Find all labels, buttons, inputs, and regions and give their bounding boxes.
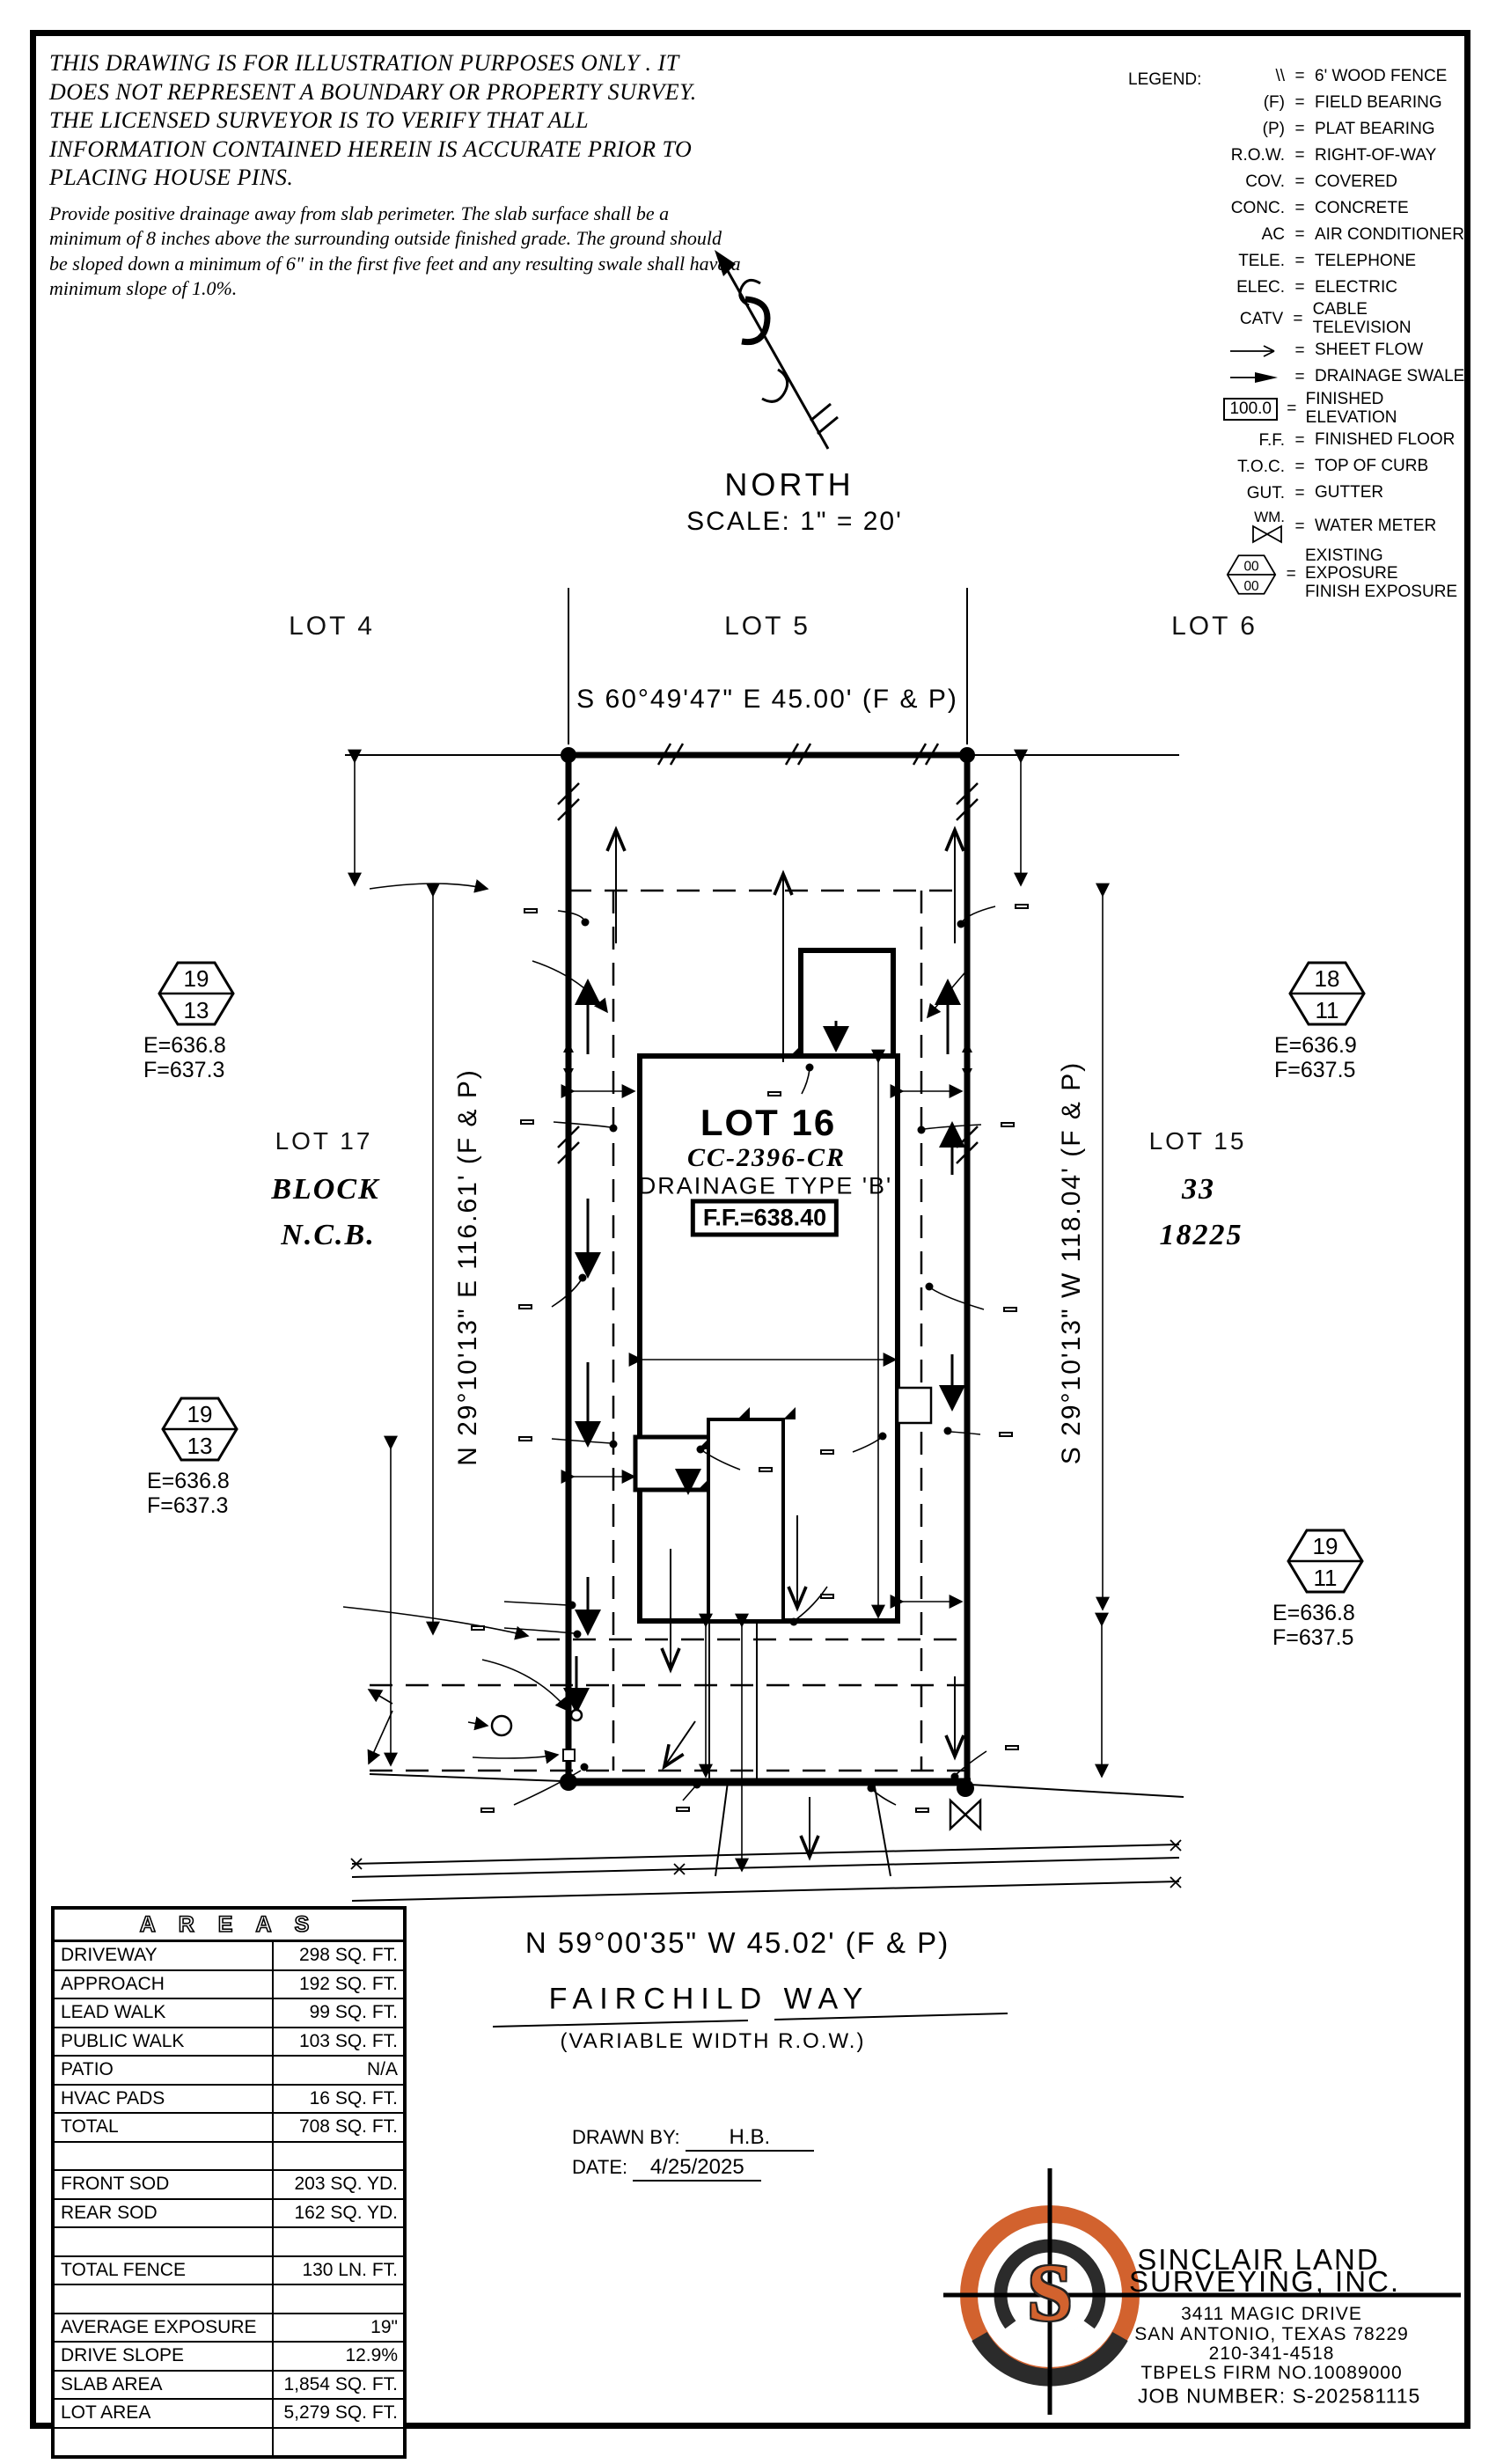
areas-row-value: 12.9% — [274, 2343, 403, 2370]
areas-table-title: A R E A S — [55, 1910, 403, 1942]
exposure-hex-icon: 00 00 — [1226, 553, 1277, 597]
areas-row-value — [274, 2429, 403, 2456]
areas-table-row: LEAD WALK 99 SQ. FT. — [55, 1999, 403, 2028]
exposure-marker: 19 13 E=636.8 F=637.3 — [147, 1379, 253, 1534]
exposure-values: E=636.8 F=637.3 — [147, 1470, 253, 1518]
areas-row-label: HVAC PADS — [55, 2086, 274, 2113]
legend-equals: = — [1285, 517, 1315, 537]
finished-elevation — [518, 1436, 532, 1441]
areas-table-row: SLAB AREA 1,854 SQ. FT. — [55, 2372, 403, 2401]
finished-elevation — [1001, 1122, 1015, 1127]
areas-table-row: DRIVE SLOPE 12.9% — [55, 2343, 403, 2372]
areas-row-value: 203 SQ. YD. — [274, 2171, 403, 2198]
finished-elevation — [1005, 1745, 1019, 1750]
legend-row: TELE. = TELEPHONE — [1181, 248, 1468, 275]
firm-monogram: S — [1027, 2246, 1072, 2339]
lot15-block33: 33 — [1182, 1173, 1215, 1206]
areas-row-label: DRIVEWAY — [55, 1942, 274, 1969]
finished-elevation — [759, 1467, 773, 1472]
areas-row-label: PUBLIC WALK — [55, 2028, 274, 2056]
areas-table-row: PATIO N/A — [55, 2057, 403, 2086]
svg-text:19: 19 — [187, 1401, 213, 1427]
finished-elevation — [999, 1432, 1013, 1437]
exposure-hex-icon: 18 11 — [1287, 959, 1367, 1028]
legend-row: CONC. = CONCRETE — [1181, 195, 1468, 222]
legend-label: WATER METER — [1315, 517, 1436, 536]
legend-row: 00 00 = EXISTING EXPOSURE FINISH EXPOSUR… — [1181, 547, 1468, 603]
areas-row-label — [55, 2143, 274, 2170]
walk-drive-street — [352, 1621, 1179, 2027]
legend-equals: = — [1285, 368, 1315, 387]
areas-table-row: LOT AREA 5,279 SQ. FT. — [55, 2400, 403, 2429]
legend-equals: = — [1285, 93, 1315, 113]
exposure-marker: 19 11 E=636.8 F=637.5 — [1272, 1511, 1378, 1666]
legend-label: FIELD BEARING — [1315, 94, 1442, 113]
adjacent-lot-5: LOT 5 — [724, 612, 810, 642]
legend-symbol: 00 00 — [1181, 553, 1277, 597]
legend-label: EXISTING EXPOSURE FINISH EXPOSURE — [1305, 547, 1468, 603]
legend-row: WM. = WATER METER — [1181, 507, 1468, 547]
finished-elevation — [471, 1625, 485, 1631]
areas-row-label: FRONT SOD — [55, 2171, 274, 2198]
disclaimer: THIS DRAWING IS FOR ILLUSTRATION PURPOSE… — [49, 49, 744, 311]
areas-row-label: LOT AREA — [55, 2400, 274, 2427]
areas-row-label: PATIO — [55, 2057, 274, 2084]
firm-job-number: JOB NUMBER: S-202581115 — [1138, 2385, 1420, 2409]
legend-equals: = — [1277, 565, 1305, 584]
areas-row-label: REAR SOD — [55, 2200, 274, 2227]
legend-label: GUTTER — [1315, 484, 1383, 502]
legend-label: CABLE TELEVISION — [1313, 301, 1468, 338]
areas-row-label: SLAB AREA — [55, 2372, 274, 2399]
drawn-by-row: DRAWN BY: H.B. — [475, 2125, 873, 2152]
adjacent-lot-6: LOT 6 — [1171, 612, 1258, 642]
finished-elevation — [820, 1594, 834, 1599]
drawn-by-label: DRAWN BY: — [572, 2126, 680, 2148]
bearing-bottom: N 59°00'35" W 45.02' (F & P) — [525, 1926, 950, 1960]
finished-elevation — [676, 1807, 690, 1812]
areas-row-value: 5,279 SQ. FT. — [274, 2400, 403, 2427]
legend-label: 6' WOOD FENCE — [1315, 68, 1447, 86]
legend-row: T.O.C. = TOP OF CURB — [1181, 454, 1468, 480]
legend-equals: = — [1283, 310, 1312, 329]
legend-symbol: WM. — [1181, 510, 1285, 544]
areas-row-label: TOTAL — [55, 2114, 274, 2141]
legend-equals: = — [1285, 172, 1315, 192]
legend-equals: = — [1285, 278, 1315, 297]
sheet-flow-icon — [1228, 344, 1285, 357]
disclaimer-paragraph-1: THIS DRAWING IS FOR ILLUSTRATION PURPOSE… — [49, 49, 744, 193]
legend-label: SHEET FLOW — [1315, 341, 1423, 360]
finished-elevation — [915, 1808, 929, 1813]
exposure-hex-icon: 19 13 — [160, 1395, 239, 1463]
finished-elevation — [480, 1808, 495, 1813]
areas-row-value — [274, 2143, 403, 2170]
areas-table: A R E A S DRIVEWAY 298 SQ. FT. APPROACH … — [51, 1906, 407, 2459]
legend-equals: = — [1285, 458, 1315, 477]
lot17-block: BLOCK — [271, 1173, 379, 1206]
legend-equals: = — [1285, 67, 1315, 86]
legend-equals: = — [1285, 431, 1315, 451]
legend-row: \\ = 6' WOOD FENCE — [1181, 63, 1468, 90]
svg-text:18: 18 — [1315, 965, 1340, 992]
street-name: FAIRCHILD WAY — [549, 1983, 870, 2017]
subject-lot-drainage: DRAINAGE TYPE 'B' — [639, 1173, 892, 1200]
legend-symbol: \\ — [1181, 67, 1285, 86]
legend-symbol: F.F. — [1181, 431, 1285, 451]
adjacent-lot-4: LOT 4 — [289, 612, 375, 642]
areas-table-row: AVERAGE EXPOSURE 19" — [55, 2314, 403, 2343]
areas-row-value: 708 SQ. FT. — [274, 2114, 403, 2141]
finished-elevation — [820, 1449, 834, 1455]
lot17-label: LOT 17 — [275, 1127, 373, 1155]
areas-row-value: 162 SQ. YD. — [274, 2200, 403, 2227]
legend-label: FINISHED ELEVATION — [1306, 391, 1468, 428]
finished-elevation — [520, 1119, 534, 1125]
firm-address-1: 3411 MAGIC DRIVE — [1181, 2304, 1362, 2325]
legend-label: TOP OF CURB — [1315, 458, 1428, 476]
exposure-marker: 19 13 E=636.8 F=637.3 — [143, 943, 249, 1098]
areas-row-value — [274, 2285, 403, 2313]
finished-elevation — [1015, 904, 1029, 909]
areas-table-row: DRIVEWAY 298 SQ. FT. — [55, 1942, 403, 1971]
legend-label: AIR CONDITIONER — [1315, 226, 1464, 245]
areas-table-row — [55, 2429, 403, 2456]
areas-row-label — [55, 2285, 274, 2313]
water-meter-icon — [950, 1800, 980, 1829]
legend-row: F.F. = FINISHED FLOOR — [1181, 428, 1468, 454]
areas-row-label — [55, 2429, 274, 2456]
legend-equals: = — [1285, 120, 1315, 139]
areas-table-row: TOTAL FENCE 130 LN. FT. — [55, 2257, 403, 2286]
areas-row-label: DRIVE SLOPE — [55, 2343, 274, 2370]
firm-tbpels: TBPELS FIRM NO.10089000 — [1140, 2363, 1402, 2384]
exposure-values: E=636.8 F=637.5 — [1272, 1602, 1378, 1650]
areas-row-value: N/A — [274, 2057, 403, 2084]
legend-symbol: (F) — [1181, 93, 1285, 113]
scale-label: SCALE: 1" = 20' — [686, 507, 903, 537]
legend-symbol: 100.0 — [1181, 398, 1278, 421]
legend-equals: = — [1285, 225, 1315, 245]
finished-elevation — [518, 1304, 532, 1309]
areas-row-value: 130 LN. FT. — [274, 2257, 403, 2284]
legend-symbol: CONC. — [1181, 199, 1285, 218]
title-block: DRAWN BY: H.B. DATE: 4/25/2025 — [475, 2116, 873, 2182]
finished-elevation — [767, 1091, 781, 1096]
exposure-marker: 18 11 E=636.9 F=637.5 — [1274, 943, 1380, 1098]
svg-text:19: 19 — [184, 965, 209, 992]
legend-symbol: TELE. — [1181, 252, 1285, 271]
areas-row-value: 99 SQ. FT. — [274, 1999, 403, 2027]
svg-text:13: 13 — [184, 997, 209, 1023]
exposure-hex-icon: 19 13 — [157, 959, 236, 1028]
bearing-left: N 29°10'13" E 116.61' (F & P) — [453, 1068, 483, 1466]
areas-row-value — [274, 2228, 403, 2255]
bearing-top: S 60°49'47" E 45.00' (F & P) — [576, 685, 958, 715]
areas-table-rows: DRIVEWAY 298 SQ. FT. APPROACH 192 SQ. FT… — [55, 1942, 403, 2455]
bearing-right: S 29°10'13" W 118.04' (F & P) — [1057, 1061, 1087, 1464]
legend-symbol — [1181, 370, 1285, 384]
legend-symbol: CATV — [1181, 310, 1283, 329]
areas-table-row — [55, 2285, 403, 2314]
svg-text:19: 19 — [1313, 1533, 1338, 1559]
lot17-ncb: N.C.B. — [281, 1219, 375, 1252]
firm-address-2: SAN ANTONIO, TEXAS 78229 — [1134, 2324, 1409, 2345]
areas-table-row: PUBLIC WALK 103 SQ. FT. — [55, 2028, 403, 2057]
north-label: NORTH — [724, 466, 854, 503]
date-label: DATE: — [572, 2156, 627, 2178]
firm-name-line2: SURVEYING, INC. — [1129, 2265, 1400, 2299]
legend-label: CONCRETE — [1315, 200, 1409, 218]
legend-label: COVERED — [1315, 173, 1397, 192]
legend-row: = DRAINAGE SWALE — [1181, 364, 1468, 391]
legend-row: GUT. = GUTTER — [1181, 480, 1468, 507]
svg-text:13: 13 — [187, 1433, 213, 1459]
legend-row: (P) = PLAT BEARING — [1181, 116, 1468, 143]
areas-row-value: 192 SQ. FT. — [274, 1971, 403, 1998]
areas-table-row: REAR SOD 162 SQ. YD. — [55, 2200, 403, 2229]
legend-symbol: (P) — [1181, 120, 1285, 139]
legend-symbol: T.O.C. — [1181, 458, 1285, 477]
legend-row: AC = AIR CONDITIONER — [1181, 222, 1468, 248]
lot15-ncb: 18225 — [1160, 1219, 1243, 1252]
subject-lot-cc: CC-2396-CR — [687, 1143, 846, 1173]
legend-equals: = — [1285, 252, 1315, 271]
areas-row-value: 19" — [274, 2314, 403, 2342]
legend-row: (F) = FIELD BEARING — [1181, 90, 1468, 116]
legend-label: FINISHED FLOOR — [1315, 431, 1455, 450]
legend-row: 100.0 = FINISHED ELEVATION — [1181, 391, 1468, 428]
legend-equals: = — [1278, 400, 1306, 419]
legend-label: TELEPHONE — [1315, 253, 1416, 271]
legend-equals: = — [1285, 146, 1315, 165]
street-row: (VARIABLE WIDTH R.O.W.) — [561, 2029, 866, 2054]
exposure-values: E=636.9 F=637.5 — [1274, 1034, 1380, 1082]
areas-table-row: TOTAL 708 SQ. FT. — [55, 2114, 403, 2143]
site-plan-sheet: THIS DRAWING IS FOR ILLUSTRATION PURPOSE… — [0, 0, 1496, 2464]
legend-row: = SHEET FLOW — [1181, 338, 1468, 364]
svg-text:00: 00 — [1244, 559, 1259, 574]
legend-symbol: GUT. — [1181, 484, 1285, 503]
finished-elevation — [524, 908, 538, 913]
areas-row-value: 16 SQ. FT. — [274, 2086, 403, 2113]
areas-table-row — [55, 2143, 403, 2172]
firm-phone: 210-341-4518 — [1209, 2343, 1335, 2365]
legend-symbol — [1181, 344, 1285, 357]
areas-row-label — [55, 2228, 274, 2255]
areas-table-row: FRONT SOD 203 SQ. YD. — [55, 2171, 403, 2200]
finished-elevation — [1003, 1307, 1017, 1312]
finished-floor-label: F.F.=638.40 — [691, 1199, 839, 1237]
areas-table-row: APPROACH 192 SQ. FT. — [55, 1971, 403, 2000]
legend-symbol: ELEC. — [1181, 278, 1285, 297]
disclaimer-paragraph-2: Provide positive drainage away from slab… — [49, 202, 744, 302]
legend-row: R.O.W. = RIGHT-OF-WAY — [1181, 143, 1468, 169]
lot15-label: LOT 15 — [1149, 1127, 1247, 1155]
areas-row-label: LEAD WALK — [55, 1999, 274, 2027]
svg-text:00: 00 — [1244, 579, 1259, 594]
svg-text:11: 11 — [1316, 997, 1339, 1023]
date-row: DATE: 4/25/2025 — [475, 2155, 873, 2182]
legend-equals: = — [1285, 341, 1315, 361]
legend-label: DRAINAGE SWALE — [1315, 368, 1464, 386]
areas-row-label: AVERAGE EXPOSURE — [55, 2314, 274, 2342]
areas-row-value: 1,854 SQ. FT. — [274, 2372, 403, 2399]
drainage-swale-icon — [1228, 370, 1285, 384]
legend-equals: = — [1285, 199, 1315, 218]
areas-row-value: 103 SQ. FT. — [274, 2028, 403, 2056]
exposure-hex-icon: 19 11 — [1286, 1527, 1365, 1595]
legend-symbol: R.O.W. — [1181, 146, 1285, 165]
legend-row: CATV = CABLE TELEVISION — [1181, 301, 1468, 338]
areas-row-label: TOTAL FENCE — [55, 2257, 274, 2284]
legend-equals: = — [1285, 484, 1315, 503]
legend-row: COV. = COVERED — [1181, 169, 1468, 195]
water-meter-legend-icon — [1250, 524, 1285, 544]
date-value: 4/25/2025 — [633, 2155, 761, 2182]
legend-symbol: COV. — [1181, 172, 1285, 192]
drawn-by-value: H.B. — [686, 2125, 814, 2152]
areas-row-label: APPROACH — [55, 1971, 274, 1998]
subject-lot-name: LOT 16 — [700, 1102, 836, 1144]
areas-row-value: 298 SQ. FT. — [274, 1942, 403, 1969]
legend-label: RIGHT-OF-WAY — [1315, 147, 1436, 165]
svg-text:11: 11 — [1314, 1565, 1338, 1591]
areas-table-row — [55, 2228, 403, 2257]
legend-row: ELEC. = ELECTRIC — [1181, 275, 1468, 301]
areas-table-row: HVAC PADS 16 SQ. FT. — [55, 2086, 403, 2115]
legend-label: PLAT BEARING — [1315, 121, 1435, 139]
legend-symbol: AC — [1181, 225, 1285, 245]
legend-label: ELECTRIC — [1315, 279, 1397, 297]
legend-rows: \\ = 6' WOOD FENCE (F) — [1181, 63, 1468, 602]
exposure-values: E=636.8 F=637.3 — [143, 1034, 249, 1082]
